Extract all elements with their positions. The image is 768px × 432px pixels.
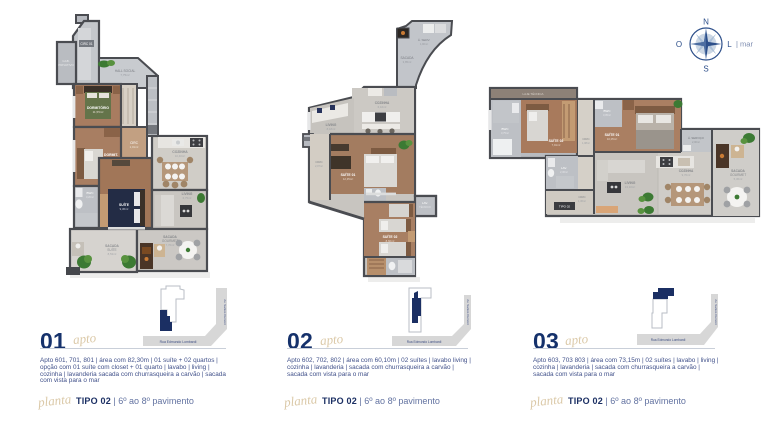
svg-text:13,10m²: 13,10m² xyxy=(625,185,635,189)
svg-text:CIRC 01: CIRC 01 xyxy=(80,42,92,46)
svg-text:2,00m²: 2,00m² xyxy=(692,140,700,144)
svg-text:8,53m²: 8,53m² xyxy=(108,252,117,256)
svg-text:CIRC: CIRC xyxy=(578,195,586,199)
svg-text:LAV.: LAV. xyxy=(422,201,428,205)
svg-text:2,36m²: 2,36m² xyxy=(560,170,568,174)
svg-text:CIRC: CIRC xyxy=(315,160,323,164)
svg-text:7,75m²: 7,75m² xyxy=(120,73,129,77)
svg-text:Rua Edmundo Lombardi: Rua Edmundo Lombardi xyxy=(651,338,686,342)
svg-text:1,90m²: 1,90m² xyxy=(420,42,428,46)
svg-text:Av. Santos Dumont: Av. Santos Dumont xyxy=(466,299,470,325)
svg-text:BWC: BWC xyxy=(604,109,612,113)
svg-text:Rua Edmundo Lombardi: Rua Edmundo Lombardi xyxy=(160,340,197,344)
svg-text:8,18m²: 8,18m² xyxy=(327,127,336,131)
svg-text:10,40m²: 10,40m² xyxy=(175,154,185,158)
svg-text:LAJE TÉCNICA: LAJE TÉCNICA xyxy=(522,91,543,96)
svg-text:Á. SERVIÇO: Á. SERVIÇO xyxy=(688,136,705,140)
svg-text:BWC: BWC xyxy=(502,127,510,131)
svg-text:Av. Santos Dumont: Av. Santos Dumont xyxy=(714,299,718,325)
svg-text:11,55m²: 11,55m² xyxy=(93,110,104,114)
svg-text:3,20m²: 3,20m² xyxy=(86,195,94,199)
svg-text:7,91m²: 7,91m² xyxy=(552,143,561,147)
svg-text:BWC: BWC xyxy=(87,191,95,195)
svg-text:S: S xyxy=(703,65,708,74)
svg-text:O: O xyxy=(676,40,682,49)
svg-text:3,75m²: 3,75m² xyxy=(501,131,509,135)
svg-text:LAV.: LAV. xyxy=(561,166,567,170)
svg-text:L: L xyxy=(727,40,732,49)
svg-text:| mar: | mar xyxy=(736,40,753,49)
svg-text:Av. Santos Dumont: Av. Santos Dumont xyxy=(223,299,227,325)
svg-text:1,36m²: 1,36m² xyxy=(578,199,586,203)
svg-text:1,08m²: 1,08m² xyxy=(582,141,590,145)
svg-text:10,05m²: 10,05m² xyxy=(607,137,617,141)
svg-text:5,36m²: 5,36m² xyxy=(734,177,743,181)
svg-text:3,05m²: 3,05m² xyxy=(603,113,611,117)
svg-text:CIRC: CIRC xyxy=(582,137,590,141)
svg-text:6,75m²: 6,75m² xyxy=(183,196,192,200)
svg-text:Á. SERV.: Á. SERV. xyxy=(418,38,431,42)
svg-text:Rua Edmundo Lombardi: Rua Edmundo Lombardi xyxy=(407,340,442,344)
svg-text:2,07m²: 2,07m² xyxy=(315,164,323,168)
svg-text:N: N xyxy=(703,18,709,27)
svg-text:TIPO 02: TIPO 02 xyxy=(559,205,571,209)
svg-text:1,01m²: 1,01m² xyxy=(130,145,139,149)
svg-text:PRIVATIVO: PRIVATIVO xyxy=(58,63,74,67)
svg-text:9,70m²: 9,70m² xyxy=(682,173,691,177)
svg-text:7,70m²: 7,70m² xyxy=(166,243,175,247)
svg-text:6,16m²: 6,16m² xyxy=(378,105,387,109)
svg-text:3,85m²: 3,85m² xyxy=(403,60,412,64)
svg-text:12,35m²: 12,35m² xyxy=(343,177,353,181)
svg-text:9,36m²: 9,36m² xyxy=(120,207,129,211)
